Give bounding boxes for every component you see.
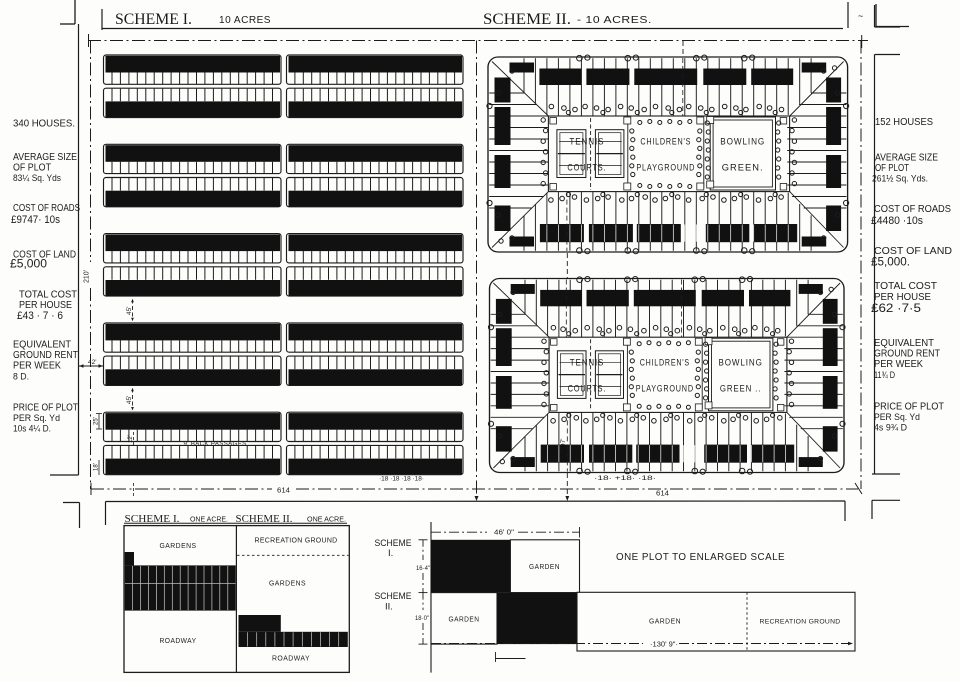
svg-text:GARDEN: GARDEN — [529, 564, 560, 571]
svg-text:210': 210' — [84, 270, 91, 283]
svg-text:£43 · 7 · 6: £43 · 7 · 6 — [17, 310, 63, 322]
svg-text:SCHEME II.: SCHEME II. — [483, 11, 571, 28]
svg-text:GARDEN: GARDEN — [649, 619, 681, 626]
svg-text:TOTAL COST: TOTAL COST — [19, 290, 77, 301]
svg-text:·18 ·18 ·18 ·18·: ·18 ·18 ·18 ·18· — [379, 477, 424, 483]
svg-text:SCHEME: SCHEME — [375, 591, 412, 602]
svg-text:614: 614 — [656, 491, 669, 498]
svg-text:261½ Sq. Yds.: 261½ Sq. Yds. — [872, 174, 928, 185]
svg-text:PLAYGROUND: PLAYGROUND — [636, 383, 694, 393]
svg-text:16·4": 16·4" — [416, 565, 431, 572]
svg-text:£4480 ·10s: £4480 ·10s — [871, 215, 923, 227]
svg-text:BOWLING: BOWLING — [718, 358, 762, 368]
svg-text:83¼ Sq. Yds: 83¼ Sq. Yds — [13, 173, 61, 184]
svg-text:18': 18' — [94, 463, 100, 471]
svg-text:46' 0": 46' 0" — [494, 530, 515, 537]
svg-text:GREEN ..: GREEN .. — [720, 383, 761, 393]
svg-text:TENNIS: TENNIS — [570, 358, 604, 368]
svg-text:ONE PLOT TO ENLARGED SCALE: ONE PLOT TO ENLARGED SCALE — [616, 551, 785, 563]
svg-text:45': 45' — [126, 396, 133, 404]
svg-text:£5,000: £5,000 — [10, 259, 47, 271]
svg-text:- 10 ACRES.: - 10 ACRES. — [577, 14, 652, 26]
svg-text:PER HOUSE: PER HOUSE — [874, 291, 931, 303]
svg-text:EQUIVALENT: EQUIVALENT — [874, 338, 934, 349]
svg-text:EQUIVALENT: EQUIVALENT — [13, 340, 71, 351]
svg-text:·18· +18· ·18·: ·18· +18· ·18· — [594, 476, 656, 482]
svg-text:COURTS.: COURTS. — [567, 163, 606, 173]
svg-text:COURTS.: COURTS. — [568, 383, 606, 393]
svg-text:GROUND RENT: GROUND RENT — [874, 349, 940, 360]
svg-text:AVERAGE SIZE: AVERAGE SIZE — [875, 153, 938, 164]
svg-text:ROADWAY: ROADWAY — [160, 636, 197, 645]
svg-text:OF PLOT: OF PLOT — [13, 163, 51, 174]
svg-text:12': 12' — [128, 435, 134, 443]
svg-text:II.: II. — [385, 602, 393, 613]
svg-text:GROUND RENT: GROUND RENT — [13, 350, 78, 361]
svg-text:I.: I. — [388, 548, 393, 559]
svg-text:GARDENS: GARDENS — [160, 541, 197, 550]
svg-text:18·0": 18·0" — [415, 615, 430, 622]
svg-text:PER Sq. Yd: PER Sq. Yd — [874, 412, 920, 423]
svg-text:OF PLOT: OF PLOT — [875, 163, 909, 174]
svg-text:GREEN.: GREEN. — [722, 163, 764, 173]
svg-text:£5,000.: £5,000. — [871, 257, 910, 269]
svg-text:8 D.: 8 D. — [13, 372, 29, 383]
svg-text:PER WEEK: PER WEEK — [13, 361, 61, 372]
svg-text:340 HOUSES.: 340 HOUSES. — [13, 119, 75, 130]
svg-text:£62 ·7·5: £62 ·7·5 — [871, 303, 921, 315]
svg-text:11¾ D: 11¾ D — [874, 370, 895, 381]
svg-text:COST OF LAND: COST OF LAND — [874, 245, 952, 257]
svg-text:SCHEME I.: SCHEME I. — [115, 11, 192, 28]
svg-text:RECREATION GROUND: RECREATION GROUND — [760, 619, 841, 626]
svg-text:£9747· 10s: £9747· 10s — [11, 214, 60, 226]
svg-text:614: 614 — [277, 488, 290, 495]
svg-text:42': 42' — [88, 359, 96, 366]
svg-text:GARDENS: GARDENS — [269, 579, 306, 588]
svg-text:TENNIS: TENNIS — [569, 137, 604, 147]
svg-text:PLAYGROUND: PLAYGROUND — [636, 163, 695, 173]
svg-text:4s 9¾ D: 4s 9¾ D — [874, 423, 907, 434]
svg-text:PRICE OF PLOT: PRICE OF PLOT — [874, 402, 944, 413]
svg-text:·130' 9"·: ·130' 9"· — [650, 642, 678, 649]
svg-text:ONE ACRE.: ONE ACRE. — [190, 515, 228, 524]
svg-text:RECREATION GROUND: RECREATION GROUND — [255, 536, 338, 545]
svg-text:CHILDREN'S: CHILDREN'S — [640, 358, 690, 368]
svg-text:ONE ACRE.: ONE ACRE. — [307, 515, 346, 524]
svg-text:AVERAGE SIZE: AVERAGE SIZE — [13, 152, 77, 163]
svg-text:PRICE OF PLOT: PRICE OF PLOT — [13, 403, 78, 414]
svg-text:COST OF ROADS: COST OF ROADS — [874, 203, 951, 215]
svg-text:ROADWAY: ROADWAY — [272, 654, 310, 663]
svg-text:10 ACRES: 10 ACRES — [219, 14, 271, 26]
svg-text:25': 25' — [94, 417, 100, 425]
svg-text:152 HOUSES: 152 HOUSES — [875, 117, 933, 128]
svg-text:PER WEEK: PER WEEK — [874, 359, 923, 370]
svg-text:45': 45' — [126, 307, 133, 315]
svg-text:GARDEN: GARDEN — [449, 617, 480, 624]
svg-text:10s 4¼ D.: 10s 4¼ D. — [13, 424, 51, 435]
svg-text:BOWLING: BOWLING — [720, 137, 765, 147]
svg-text:CHILDREN'S: CHILDREN'S — [640, 137, 691, 147]
svg-text:9' BACK PASSAGES: 9' BACK PASSAGES — [184, 441, 247, 448]
svg-text:COST OF ROADS: COST OF ROADS — [13, 203, 80, 214]
svg-text:PER Sq. Yd: PER Sq. Yd — [13, 413, 60, 424]
svg-text:~: ~ — [858, 11, 863, 21]
